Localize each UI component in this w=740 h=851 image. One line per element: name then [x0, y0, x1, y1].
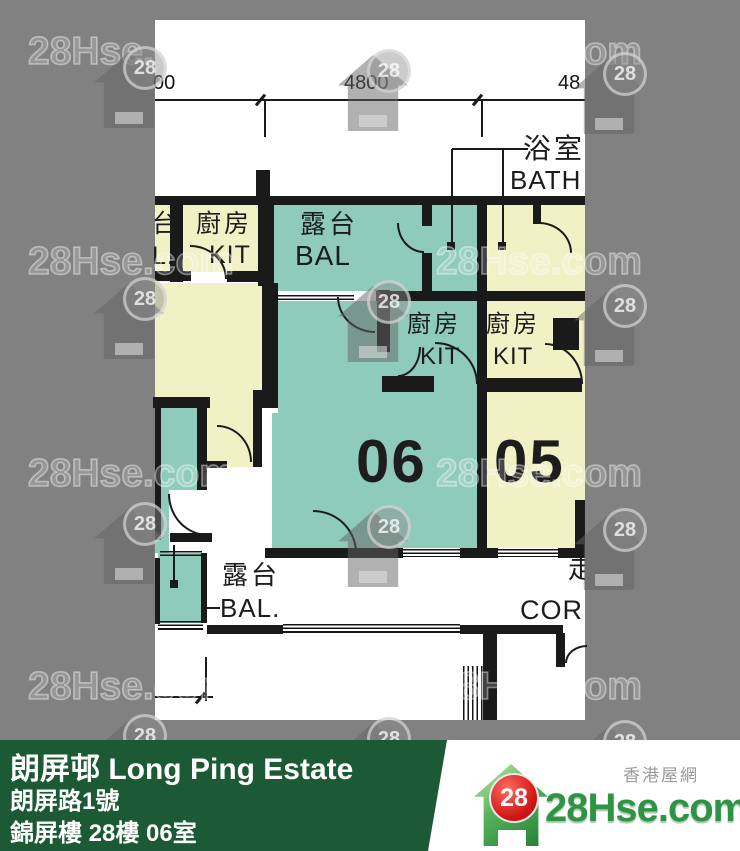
watermark-house-icon: 28 — [574, 52, 644, 134]
screenshot-root: 00 4800 48 浴室 BATH 台 L. 廚房 KIT 露台 BAL 廚房… — [0, 0, 740, 851]
unit-06-number: 06 — [356, 432, 427, 492]
estate-address: 朗屏路1號 — [10, 781, 119, 816]
partial-balcony-label-zh: 台 — [152, 212, 180, 237]
logo-door-shape — [498, 830, 526, 846]
balcony-leader-line — [206, 607, 220, 609]
wall-segment — [533, 196, 541, 224]
window-glazing — [403, 549, 460, 557]
info-banner: 朗屏邨 Long Ping Estate 朗屏路1號 錦屏樓 28樓 06室 香… — [0, 740, 740, 851]
watermark-house-icon: 28 — [338, 49, 408, 131]
bath-leader-line — [451, 149, 453, 245]
window-glazing — [160, 551, 202, 557]
wall-segment — [382, 376, 434, 392]
kitchen05-label-zh: 廚房 — [486, 313, 540, 337]
balcony-leader-line — [173, 545, 175, 583]
leader-endpoint — [170, 580, 178, 588]
logo-site-name: 28Hse.com — [545, 786, 740, 831]
bath-leader-line — [502, 149, 504, 245]
balcony06-label-zh: 露台 — [300, 211, 358, 237]
wall-segment — [201, 553, 207, 623]
window-glazing — [158, 621, 203, 631]
window-glazing — [498, 549, 558, 557]
bath-leader-line — [452, 148, 528, 150]
wall-segment — [422, 196, 432, 226]
watermark-text: 28Hse.com — [436, 665, 642, 709]
watermark-text: 28Hse.com — [28, 665, 234, 709]
logo-badge-28: 28 — [489, 773, 539, 823]
watermark-house-icon: 28 — [574, 508, 644, 590]
wall-corridor-right — [556, 633, 565, 667]
kitchen05-label-en: KIT — [493, 345, 533, 369]
bath-label-en: BATH — [510, 167, 581, 193]
wall-segment — [460, 625, 563, 634]
watermark-house-icon: 28 — [338, 280, 408, 362]
balcony-bottom-label-zh: 露台 — [222, 562, 280, 588]
watermark-text: 28Hse.com — [436, 452, 642, 496]
room-left-unit-living — [155, 283, 262, 408]
balcony-bottom-label-en: BAL. — [220, 595, 280, 621]
wall-segment — [262, 397, 270, 408]
estate-unit-info: 錦屏樓 28樓 06室 — [10, 813, 197, 848]
watermark-text: 28Hse.com — [28, 452, 234, 496]
28hse-logo[interactable]: 香港屋網 28 28Hse.com — [472, 760, 722, 850]
balcony06-label-en: BAL — [295, 242, 351, 270]
wall-segment — [253, 390, 262, 467]
kitchen06-label-zh: 廚房 — [407, 313, 461, 337]
watermark-house-icon: 28 — [338, 505, 408, 587]
wall-segment — [460, 548, 498, 558]
wall-segment — [207, 625, 283, 634]
watermark-house-icon: 28 — [94, 46, 164, 128]
dimension-extension — [481, 101, 483, 137]
wall-segment — [256, 170, 270, 197]
wall-segment — [258, 196, 274, 286]
wall-segment — [155, 196, 585, 205]
corridor-label-en: COR — [520, 597, 583, 624]
watermark-text: 28Hse.com — [436, 240, 642, 284]
window-glazing — [283, 624, 460, 633]
watermark-house-icon: 28 — [94, 277, 164, 359]
wall-segment — [487, 291, 585, 301]
dimension-extension — [264, 101, 266, 137]
room-balcony-bottom — [158, 553, 204, 623]
kitchen-left-label-zh: 廚房 — [196, 212, 252, 237]
kitchen06-label-en: KIT — [420, 345, 460, 369]
bath-label-zh: 浴室 — [523, 135, 585, 163]
watermark-house-icon: 28 — [94, 502, 164, 584]
logo-tagline: 香港屋網 — [623, 761, 699, 786]
watermark-house-icon: 28 — [574, 284, 644, 366]
